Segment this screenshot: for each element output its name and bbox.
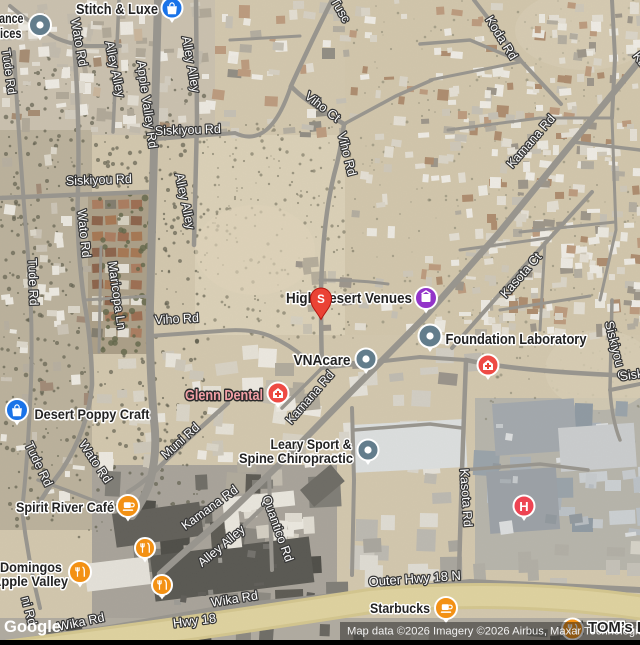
- svg-text:Desert Poppy Craft: Desert Poppy Craft: [35, 406, 150, 422]
- svg-text:Starbucks: Starbucks: [370, 600, 430, 616]
- svg-text:Glenn Dental: Glenn Dental: [185, 387, 263, 404]
- svg-text:Foundation Laboratory: Foundation Laboratory: [446, 331, 588, 348]
- svg-text:High Desert Venues: High Desert Venues: [286, 290, 412, 307]
- svg-text:Tude Rd: Tude Rd: [25, 258, 41, 306]
- svg-text:Siskiyou Rd: Siskiyou Rd: [155, 122, 221, 138]
- svg-text:Sisk: Sisk: [619, 366, 640, 383]
- svg-text:Siskiyou Rd: Siskiyou Rd: [66, 172, 132, 188]
- svg-text:Spirit River Café: Spirit River Café: [16, 499, 114, 515]
- svg-text:Apple Valley: Apple Valley: [0, 573, 68, 589]
- svg-text:ervices: ervices: [0, 25, 22, 41]
- svg-text:Google: Google: [4, 617, 61, 636]
- svg-text:S: S: [317, 294, 325, 306]
- svg-text:VNAcare: VNAcare: [294, 352, 351, 369]
- svg-text:H: H: [519, 499, 528, 514]
- svg-text:urance: urance: [0, 10, 24, 26]
- svg-text:Viho Rd: Viho Rd: [154, 311, 199, 327]
- svg-text:TOM’s Far: TOM’s Far: [588, 619, 640, 636]
- svg-text:Stitch & Luxe: Stitch & Luxe: [76, 1, 158, 18]
- svg-text:Spine Chiropractic: Spine Chiropractic: [239, 450, 353, 466]
